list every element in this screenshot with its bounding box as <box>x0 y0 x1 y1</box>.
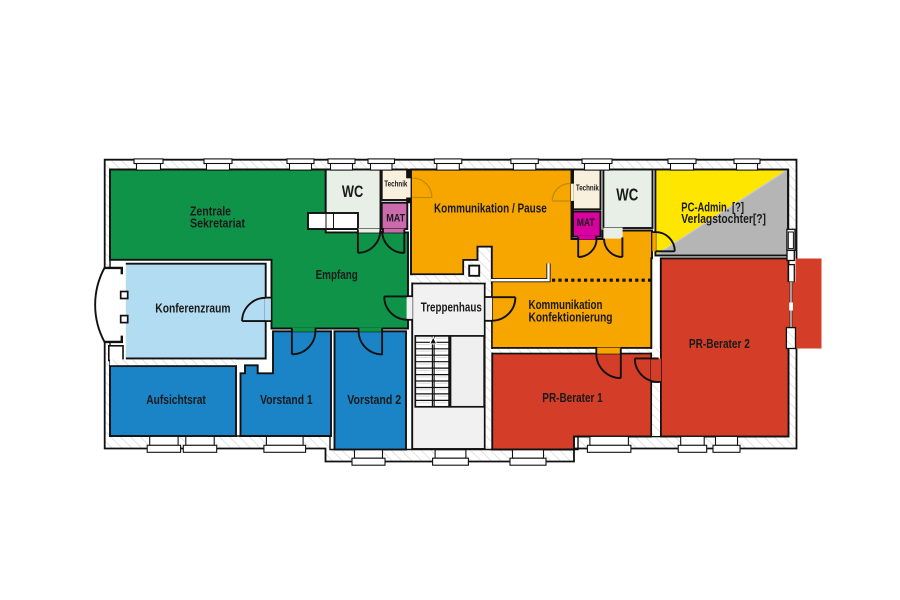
svg-text:Treppenhaus: Treppenhaus <box>421 300 482 314</box>
svg-text:WC: WC <box>342 183 363 201</box>
svg-text:PR-Berater 2: PR-Berater 2 <box>689 337 750 351</box>
svg-text:WC: WC <box>616 185 638 205</box>
svg-text:Konfektionierung: Konfektionierung <box>529 310 613 324</box>
svg-text:MAT: MAT <box>386 213 405 225</box>
svg-text:Sekretariat: Sekretariat <box>190 217 246 231</box>
svg-text:Technik: Technik <box>384 178 407 188</box>
svg-text:Verlagstochter[?]: Verlagstochter[?] <box>681 212 766 226</box>
svg-text:Konferenzraum: Konferenzraum <box>155 302 230 316</box>
svg-text:Vorstand 2: Vorstand 2 <box>347 393 401 407</box>
svg-text:Aufsichtsrat: Aufsichtsrat <box>146 393 206 407</box>
svg-text:Vorstand 1: Vorstand 1 <box>260 393 313 407</box>
svg-text:Kommunikation / Pause: Kommunikation / Pause <box>434 202 547 216</box>
svg-text:Technik: Technik <box>576 183 599 193</box>
svg-text:Empfang: Empfang <box>316 268 358 282</box>
svg-text:PR-Berater 1: PR-Berater 1 <box>542 391 602 405</box>
svg-text:MAT: MAT <box>577 217 595 229</box>
